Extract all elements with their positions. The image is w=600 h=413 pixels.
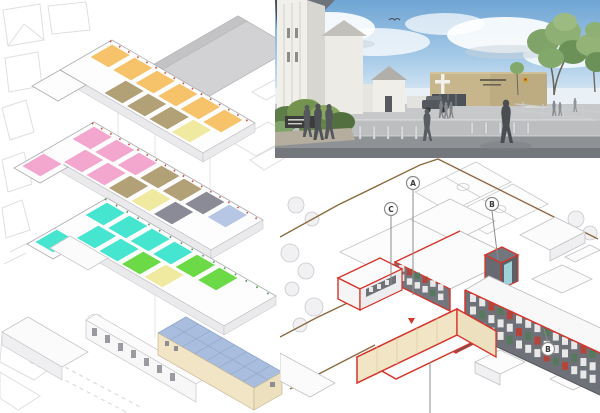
window-cell [534,337,540,345]
window-cell [498,319,504,327]
window-cell [590,375,596,383]
window-cell [422,277,427,284]
tree-shadow [480,141,532,151]
college-facade-shade [490,72,547,106]
gable-door [385,96,392,112]
exploded-axonometric-drawing [0,0,300,413]
window-cell [470,307,476,315]
window-cell [438,294,443,301]
window-cell [507,336,513,344]
pavement-edge [275,148,600,158]
church-tower-side [307,0,325,114]
callout-letter-a: A [410,179,416,188]
callout-letter-c: C [388,205,394,214]
college-cross-horizontal [435,80,450,84]
street-view-render [275,0,600,158]
context-building [2,200,30,238]
window-cell [562,362,568,370]
red-marker-triangle [408,318,415,324]
left-wing-block [338,258,402,310]
window-cell [525,332,531,340]
callout-b-upper: B [486,198,499,211]
window-cell [415,282,420,289]
window-cell [571,366,577,374]
window-cell [525,345,531,353]
window-cell [422,286,427,293]
callout-b-lower: B [542,343,555,356]
callout-letter-b: B [545,345,551,354]
window-cell [553,358,559,366]
window-cell [534,349,540,357]
core-glazing [504,261,512,287]
window-cell [507,324,513,332]
window-cell [516,328,522,336]
window-cell [415,273,420,280]
window-cell [488,315,494,323]
window-cell [430,290,435,297]
callout-a: A [407,177,420,190]
context-box [280,353,335,397]
window-cell [498,332,504,340]
context-box [532,265,592,293]
callout-letter-b: B [489,200,495,209]
window-cell [438,284,443,291]
context-building [48,2,90,34]
church-sign [285,116,315,128]
window-cell [479,311,485,319]
college-crest-detail [525,79,527,81]
architectural-presentation-board: A C B B [0,0,600,413]
window-cell [580,358,586,366]
window-cell [407,269,412,276]
window-cell [430,280,435,287]
church-gable-front [325,36,363,114]
callout-c: C [385,203,398,216]
window-cell [580,371,586,379]
context-building [0,372,40,410]
context-building [2,100,34,140]
window-cell [516,341,522,349]
window-cell [571,354,577,362]
window-cell [590,362,596,370]
church-sign-text-line [288,123,302,124]
window-cell [407,278,412,285]
window-cell [562,349,568,357]
proposed-building-axonometric: A C B B [280,157,600,413]
